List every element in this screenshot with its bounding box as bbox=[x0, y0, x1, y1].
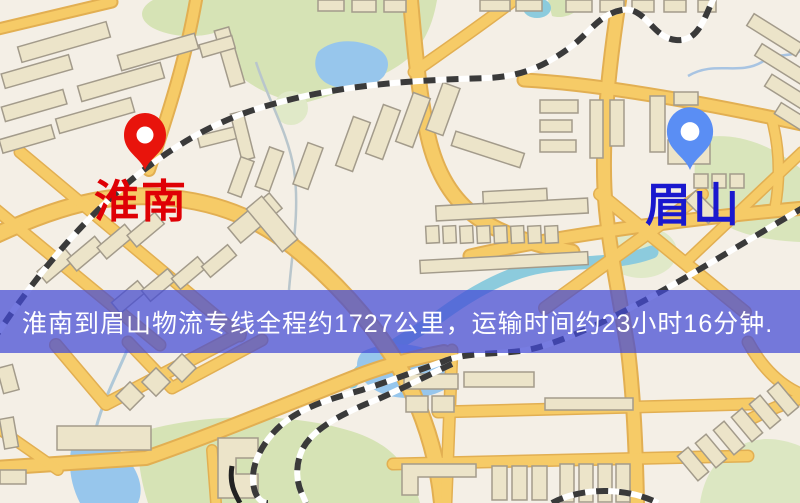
route-info-banner: 淮南到眉山物流专线全程约1727公里，运输时间约23小时16分钟. bbox=[0, 290, 800, 353]
map-canvas bbox=[0, 0, 800, 503]
destination-city-label: 眉山 bbox=[645, 182, 741, 228]
origin-city-label: 淮南 bbox=[94, 179, 188, 224]
logistics-map: 淮南 眉山 淮南到眉山物流专线全程约1727公里，运输时间约23小时16分钟. bbox=[0, 0, 800, 503]
route-info-text: 淮南到眉山物流专线全程约1727公里，运输时间约23小时16分钟. bbox=[22, 304, 773, 340]
